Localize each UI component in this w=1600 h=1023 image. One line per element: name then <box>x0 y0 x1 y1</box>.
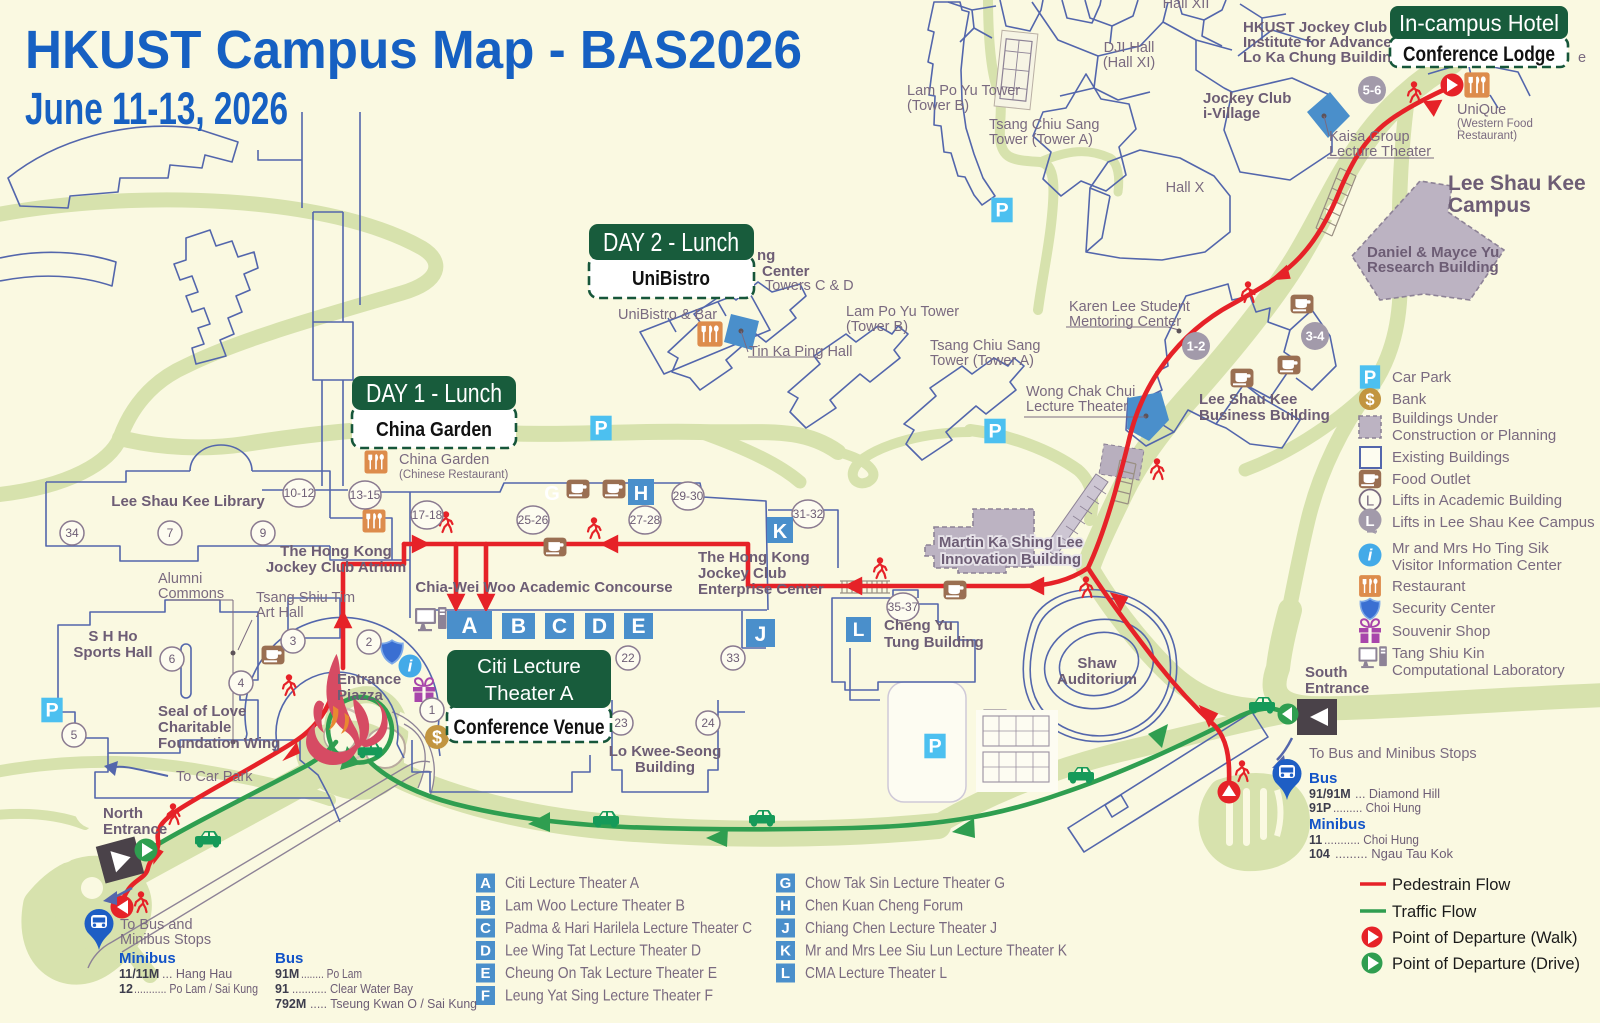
svg-text:E: E <box>631 615 645 638</box>
svg-text:UniQue: UniQue <box>1457 102 1506 118</box>
svg-text:Mr and Mrs Lee Siu Lun Lecture: Mr and Mrs Lee Siu Lun Lecture Theater K <box>805 943 1067 960</box>
svg-text:Karen Lee Student: Karen Lee Student <box>1069 299 1190 315</box>
svg-text:H: H <box>780 898 791 915</box>
svg-text:Conference Lodge: Conference Lodge <box>1403 43 1555 66</box>
svg-text:Visitor Information Center: Visitor Information Center <box>1392 557 1562 574</box>
svg-text:K: K <box>780 943 791 960</box>
svg-text:Existing Buildings: Existing Buildings <box>1392 449 1510 466</box>
svg-text:Lee Wing Tat Lecture Theater D: Lee Wing Tat Lecture Theater D <box>505 943 701 960</box>
svg-text:To Bus and Minibus Stops: To Bus and Minibus Stops <box>1309 746 1477 762</box>
svg-text:D: D <box>592 615 607 638</box>
svg-text:Bank: Bank <box>1392 391 1427 408</box>
svg-text:Chow Tak Sin Lecture Theater G: Chow Tak Sin Lecture Theater G <box>805 875 1005 892</box>
svg-text:Wong Chak Chui: Wong Chak Chui <box>1026 384 1135 400</box>
svg-text:Chen Kuan Cheng Forum: Chen Kuan Cheng Forum <box>805 898 963 915</box>
svg-text:DJI Hall: DJI Hall <box>1104 40 1155 56</box>
svg-text:5: 5 <box>71 728 78 742</box>
svg-text:Tower (Tower A): Tower (Tower A) <box>989 132 1093 148</box>
svg-text:11/11M: 11/11M <box>119 967 159 981</box>
svg-text:F: F <box>481 988 490 1005</box>
svg-text:Citi Lecture: Citi Lecture <box>477 655 581 678</box>
svg-text:Tsang Chiu Sang: Tsang Chiu Sang <box>989 117 1099 133</box>
svg-text:5-6: 5-6 <box>1363 83 1382 98</box>
svg-text:Lo Ka Chung Building: Lo Ka Chung Building <box>1243 49 1400 66</box>
svg-text:To Car Park: To Car Park <box>176 769 253 785</box>
svg-text:Cheung On Tak Lecture Theater: Cheung On Tak Lecture Theater E <box>505 965 717 982</box>
svg-text:China Garden: China Garden <box>376 419 492 441</box>
svg-text:Leung Yat Sing Lecture Theater: Leung Yat Sing Lecture Theater F <box>505 988 713 1005</box>
svg-text:Pedestrain Flow: Pedestrain Flow <box>1392 876 1510 894</box>
svg-text:Lee Shau Kee: Lee Shau Kee <box>1448 172 1586 195</box>
svg-text:North: North <box>103 805 143 822</box>
svg-text:Tower (Tower A): Tower (Tower A) <box>930 353 1034 369</box>
svg-text:6: 6 <box>169 652 176 666</box>
svg-text:South: South <box>1305 664 1348 681</box>
svg-text:UniBistro & Bar: UniBistro & Bar <box>618 307 717 323</box>
svg-text:Lee Shau Kee: Lee Shau Kee <box>1199 391 1297 408</box>
svg-text:A: A <box>480 875 491 892</box>
svg-text:i-Village: i-Village <box>1203 105 1260 122</box>
svg-text:G: G <box>544 483 560 505</box>
svg-text:Lam Po Yu Tower: Lam Po Yu Tower <box>846 304 959 320</box>
svg-text:Campus: Campus <box>1448 194 1531 217</box>
svg-text:Hall XII: Hall XII <box>1163 0 1210 12</box>
svg-text:29-30: 29-30 <box>673 489 704 503</box>
svg-text:Security Center: Security Center <box>1392 600 1495 617</box>
svg-text:Bus: Bus <box>275 950 303 967</box>
svg-text:1-2: 1-2 <box>1187 339 1206 354</box>
svg-text:91/91M: 91/91M <box>1309 787 1351 801</box>
svg-text:The Hong Kong: The Hong Kong <box>698 549 810 566</box>
svg-text:Auditorium: Auditorium <box>1057 671 1137 688</box>
svg-text:e: e <box>1578 50 1586 66</box>
svg-text:10-12: 10-12 <box>284 486 315 500</box>
svg-text:ng: ng <box>757 247 775 264</box>
svg-text:Construction or Planning: Construction or Planning <box>1392 427 1556 444</box>
svg-text:Food Outlet: Food Outlet <box>1392 471 1471 488</box>
svg-text:Citi Lecture Theater A: Citi Lecture Theater A <box>505 875 639 892</box>
svg-text:G: G <box>780 875 792 892</box>
svg-text:... Diamond Hill: ... Diamond Hill <box>1355 787 1440 801</box>
svg-text:4: 4 <box>238 676 245 690</box>
svg-text:13-15: 13-15 <box>350 488 381 502</box>
svg-text:Chiang Chen Lecture Theater J: Chiang Chen Lecture Theater J <box>805 920 997 937</box>
svg-text:17-18: 17-18 <box>412 508 443 522</box>
svg-text:3-4: 3-4 <box>1306 329 1326 344</box>
svg-text:Minibus: Minibus <box>1309 816 1366 833</box>
svg-text:Minibus: Minibus <box>119 950 176 967</box>
svg-text:Sports Hall: Sports Hall <box>73 644 152 661</box>
svg-text:104: 104 <box>1309 847 1330 861</box>
svg-text:Bus: Bus <box>1309 770 1337 787</box>
svg-text:9: 9 <box>260 526 267 540</box>
svg-text:11: 11 <box>1309 833 1322 847</box>
svg-text:... Hang Hau: ... Hang Hau <box>162 967 232 981</box>
svg-text:..... Tseung Kwan O / Sai Kung: ..... Tseung Kwan O / Sai Kung <box>310 997 477 1011</box>
svg-text:Lam Po Yu Tower: Lam Po Yu Tower <box>907 83 1020 99</box>
svg-text:C: C <box>480 920 491 937</box>
svg-text:DAY 1 - Lunch: DAY 1 - Lunch <box>366 380 502 408</box>
svg-text:B: B <box>511 615 526 638</box>
svg-text:Theater A: Theater A <box>485 682 574 705</box>
svg-text:Restaurant: Restaurant <box>1392 578 1466 595</box>
svg-text:Souvenir Shop: Souvenir Shop <box>1392 623 1490 640</box>
svg-text:Lifts in Lee Shau Kee Campus: Lifts in Lee Shau Kee Campus <box>1392 514 1595 531</box>
svg-text:Art Hall: Art Hall <box>256 605 304 621</box>
svg-text:27-28: 27-28 <box>630 513 661 527</box>
svg-text:C: C <box>552 615 567 638</box>
svg-text:Point of Departure (Walk): Point of Departure (Walk) <box>1392 929 1578 947</box>
svg-text:In-campus Hotel: In-campus Hotel <box>1399 10 1559 36</box>
svg-text:Entrance: Entrance <box>103 821 167 838</box>
svg-text:Tang Shiu Kin: Tang Shiu Kin <box>1392 645 1485 662</box>
svg-text:Jockey Club Atrium: Jockey Club Atrium <box>266 559 406 576</box>
svg-text:22: 22 <box>621 651 635 665</box>
svg-text:24: 24 <box>701 716 715 730</box>
svg-text:Charitable: Charitable <box>158 719 231 736</box>
svg-text:33: 33 <box>726 651 740 665</box>
svg-text:Lo Kwee-Seong: Lo Kwee-Seong <box>609 743 722 760</box>
svg-text:Foundation Wing: Foundation Wing <box>158 735 280 752</box>
svg-text:(Chinese Restaurant): (Chinese Restaurant) <box>399 469 508 481</box>
svg-text:Computational Laboratory: Computational Laboratory <box>1392 662 1565 679</box>
svg-text:2: 2 <box>366 635 373 649</box>
svg-text:Tung Building: Tung Building <box>884 634 984 651</box>
svg-text:31-32: 31-32 <box>793 507 824 521</box>
svg-text:Hall X: Hall X <box>1166 180 1205 196</box>
svg-text:Mr and Mrs Ho Ting Sik: Mr and Mrs Ho Ting Sik <box>1392 540 1549 557</box>
svg-text:L: L <box>781 965 790 982</box>
svg-text:Lecture Theater: Lecture Theater <box>1026 399 1128 415</box>
svg-text:34: 34 <box>65 526 79 540</box>
svg-text:S H Ho: S H Ho <box>88 628 137 645</box>
svg-text:91P: 91P <box>1309 801 1331 815</box>
svg-text:792M: 792M <box>275 997 306 1011</box>
svg-text:Building: Building <box>635 759 695 776</box>
svg-text:Point of Departure (Drive): Point of Departure (Drive) <box>1392 955 1580 973</box>
svg-text:Research Building: Research Building <box>1367 259 1499 276</box>
svg-text:Buildings Under: Buildings Under <box>1392 410 1498 427</box>
svg-text:UniBistro: UniBistro <box>632 268 710 290</box>
svg-text:Kaisa Group: Kaisa Group <box>1329 129 1410 145</box>
svg-text:A: A <box>462 613 478 638</box>
svg-text:Car Park: Car Park <box>1392 369 1452 386</box>
svg-text:3: 3 <box>290 634 297 648</box>
svg-text:12: 12 <box>119 982 133 996</box>
svg-text:......... Choi Hung: ......... Choi Hung <box>1333 801 1421 815</box>
svg-text:Enterprise Center: Enterprise Center <box>698 581 824 598</box>
svg-text:Center: Center <box>762 263 810 280</box>
svg-text:........ Po Lam: ........ Po Lam <box>301 967 362 981</box>
svg-text:CMA Lecture Theater L: CMA Lecture Theater L <box>805 965 947 982</box>
svg-text:Padma & Hari Harilela Lecture: Padma & Hari Harilela Lecture Theater C <box>505 920 752 937</box>
svg-text:J: J <box>781 920 789 937</box>
svg-text:E: E <box>480 965 490 982</box>
svg-text:To Bus and: To Bus and <box>120 917 193 933</box>
svg-text:Chia-Wei Woo Academic Concours: Chia-Wei Woo Academic Concourse <box>415 579 672 596</box>
svg-text:Lam Woo Lecture Theater B: Lam Woo Lecture Theater B <box>505 898 685 915</box>
svg-text:......... Ngau Tau Kok: ......... Ngau Tau Kok <box>1335 847 1454 861</box>
svg-text:23: 23 <box>614 716 628 730</box>
svg-text:(Tower B): (Tower B) <box>907 98 969 114</box>
svg-text:K: K <box>773 521 788 543</box>
svg-text:Tsang Shiu Tim: Tsang Shiu Tim <box>256 590 355 606</box>
svg-text:Martin Ka Shing Lee: Martin Ka Shing Lee <box>939 534 1083 551</box>
svg-text:Lee Shau Kee Library: Lee Shau Kee Library <box>111 493 265 510</box>
svg-text:HKUST Campus Map - BAS2026: HKUST Campus Map - BAS2026 <box>25 20 802 80</box>
svg-text:Towers C & D: Towers C & D <box>765 278 854 294</box>
svg-text:China Garden: China Garden <box>399 452 489 468</box>
svg-text:The Hong Kong: The Hong Kong <box>280 543 392 560</box>
svg-text:Conference Venue: Conference Venue <box>454 716 605 739</box>
svg-text:B: B <box>480 898 491 915</box>
svg-text:DAY 2 - Lunch: DAY 2 - Lunch <box>603 229 739 257</box>
svg-text:(Western Food: (Western Food <box>1457 118 1533 130</box>
svg-text:Restaurant): Restaurant) <box>1457 130 1517 142</box>
svg-text:Business Building: Business Building <box>1199 407 1330 424</box>
svg-text:Cheng Yu: Cheng Yu <box>884 617 953 634</box>
svg-text:(Hall XI): (Hall XI) <box>1103 55 1155 71</box>
svg-text:Mentoring Center: Mentoring Center <box>1069 314 1181 330</box>
svg-text:Entrance: Entrance <box>337 671 401 688</box>
svg-text:Minibus Stops: Minibus Stops <box>120 932 211 948</box>
svg-text:Seal of Love: Seal of Love <box>158 703 246 720</box>
svg-text:Shaw: Shaw <box>1077 655 1117 672</box>
svg-text:D: D <box>480 943 491 960</box>
svg-text:........... Clear Water Bay: ........... Clear Water Bay <box>292 982 414 996</box>
svg-text:Lecture Theater: Lecture Theater <box>1329 144 1431 160</box>
svg-text:Alumni: Alumni <box>158 571 202 587</box>
svg-text:L: L <box>853 620 865 641</box>
svg-text:June 11-13, 2026: June 11-13, 2026 <box>25 83 288 134</box>
svg-text:........... Po Lam / Sai Kung: ........... Po Lam / Sai Kung <box>134 982 258 996</box>
svg-text:Tsang Chiu Sang: Tsang Chiu Sang <box>930 338 1040 354</box>
svg-text:1: 1 <box>429 703 436 717</box>
svg-text:Lifts in Academic Building: Lifts in Academic Building <box>1392 492 1562 509</box>
svg-text:Innovation Building: Innovation Building <box>941 551 1081 568</box>
svg-text:Tin Ka Ping Hall: Tin Ka Ping Hall <box>749 344 852 360</box>
svg-text:35-37: 35-37 <box>888 600 919 614</box>
svg-text:J: J <box>755 623 767 646</box>
svg-text:Piazza: Piazza <box>337 687 384 704</box>
svg-text:91: 91 <box>275 982 289 996</box>
svg-text:........... Choi Hung: ........... Choi Hung <box>1324 833 1419 847</box>
svg-text:H: H <box>634 483 648 505</box>
svg-text:91M: 91M <box>275 967 299 981</box>
svg-text:25-26: 25-26 <box>518 513 549 527</box>
svg-text:Entrance: Entrance <box>1305 680 1369 697</box>
svg-text:Traffic Flow: Traffic Flow <box>1392 903 1476 921</box>
svg-text:Commons: Commons <box>158 586 224 602</box>
svg-text:(Tower B): (Tower B) <box>846 319 908 335</box>
svg-text:Jockey Club: Jockey Club <box>698 565 786 582</box>
svg-text:7: 7 <box>167 526 174 540</box>
